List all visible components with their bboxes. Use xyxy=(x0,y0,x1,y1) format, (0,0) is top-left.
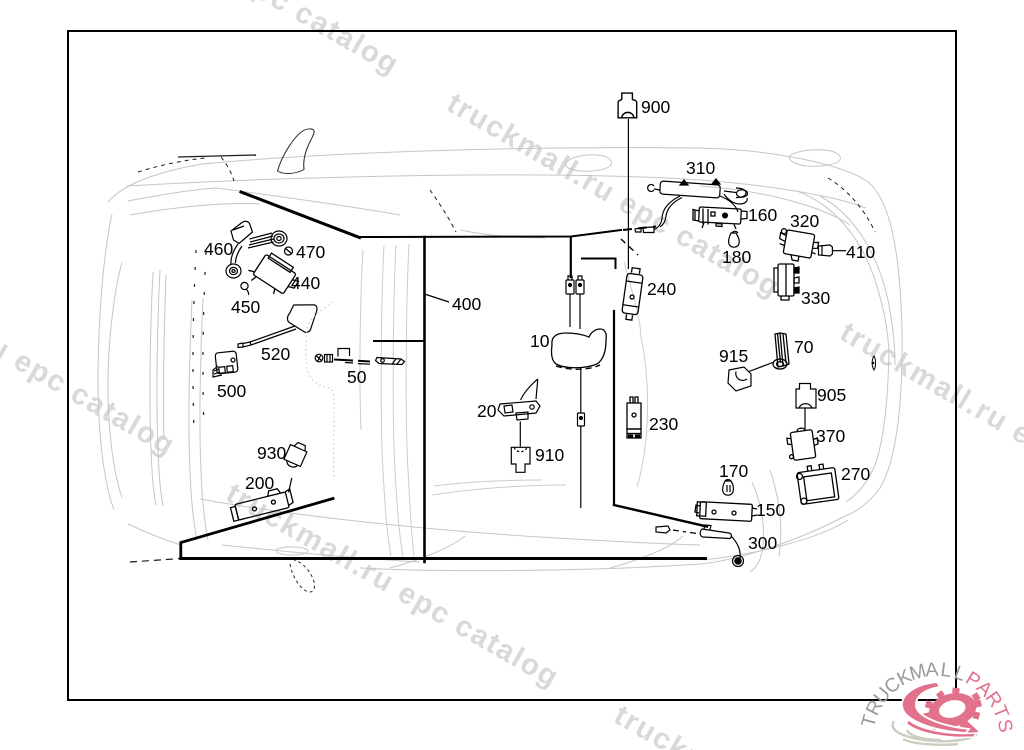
svg-text:905: 905 xyxy=(817,385,846,405)
svg-text:900: 900 xyxy=(641,97,670,117)
svg-text:915: 915 xyxy=(719,346,748,366)
svg-text:truckmall.ru epc catalog: truckmall.ru epc catalog xyxy=(442,86,787,304)
svg-text:200: 200 xyxy=(245,473,274,493)
svg-text:270: 270 xyxy=(841,464,870,484)
svg-text:truckmall.ru epc catalog: truckmall.ru epc catalog xyxy=(61,0,406,82)
svg-text:930: 930 xyxy=(257,443,286,463)
svg-text:truckmall.ru epc catalog: truckmall.ru epc catalog xyxy=(221,476,566,694)
svg-text:truckmall.ru epc catalog: truckmall.ru epc catalog xyxy=(0,244,181,462)
svg-text:70: 70 xyxy=(794,337,814,357)
svg-text:400: 400 xyxy=(452,294,481,314)
svg-text:520: 520 xyxy=(261,344,290,364)
svg-text:20: 20 xyxy=(477,401,497,421)
svg-text:truckmall.ru epc catalog: truckmall.ru epc catalog xyxy=(835,315,1024,533)
svg-text:230: 230 xyxy=(649,414,678,434)
svg-text:180: 180 xyxy=(722,247,751,267)
svg-text:S: S xyxy=(993,717,1017,734)
svg-text:150: 150 xyxy=(756,500,785,520)
svg-text:170: 170 xyxy=(719,461,748,481)
svg-text:370: 370 xyxy=(816,426,845,446)
svg-text:440: 440 xyxy=(291,273,320,293)
svg-text:470: 470 xyxy=(296,242,325,262)
svg-text:50: 50 xyxy=(347,367,367,387)
svg-text:330: 330 xyxy=(801,288,830,308)
svg-text:160: 160 xyxy=(748,205,777,225)
svg-text:320: 320 xyxy=(790,211,819,231)
svg-text:910: 910 xyxy=(535,445,564,465)
svg-text:460: 460 xyxy=(204,239,233,259)
svg-text:L: L xyxy=(939,659,953,682)
svg-text:10: 10 xyxy=(530,331,550,351)
svg-text:450: 450 xyxy=(231,297,260,317)
svg-text:310: 310 xyxy=(686,158,715,178)
svg-text:500: 500 xyxy=(217,381,246,401)
svg-text:300: 300 xyxy=(748,533,777,553)
svg-text:A: A xyxy=(925,658,939,681)
svg-text:240: 240 xyxy=(647,279,676,299)
svg-text:410: 410 xyxy=(846,242,875,262)
